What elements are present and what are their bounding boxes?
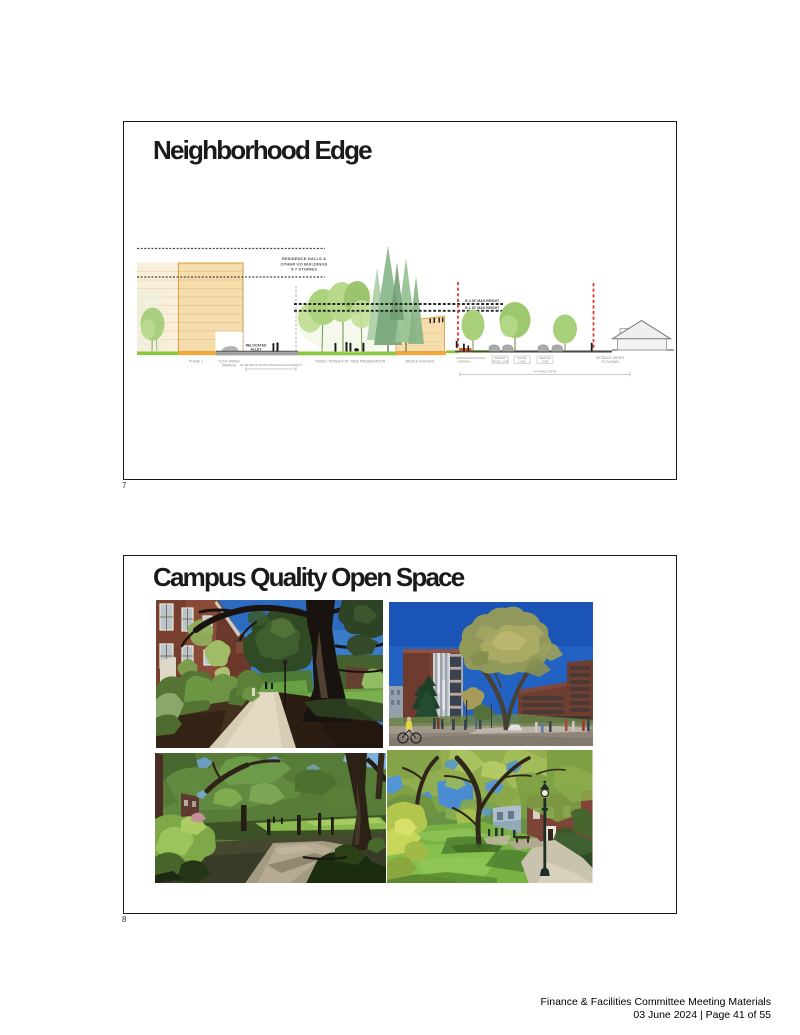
svg-text:LANE: LANE bbox=[519, 359, 526, 363]
svg-text:PHASE 1: PHASE 1 bbox=[189, 360, 203, 364]
svg-text:LANDSCAPE: LANDSCAPE bbox=[456, 356, 472, 360]
svg-text:PARKING: PARKING bbox=[494, 356, 505, 360]
svg-text:70' SHOWN: 70' SHOWN bbox=[601, 360, 619, 364]
svg-text:OTHER UO BUILDINGS: OTHER UO BUILDINGS bbox=[281, 261, 328, 266]
svg-text:60' PUBLIC ROW: 60' PUBLIC ROW bbox=[534, 370, 557, 374]
svg-text:R-2 35' MAX HEIGHT: R-2 35' MAX HEIGHT bbox=[465, 299, 500, 303]
svg-text:TRAVEL LANE: TRAVEL LANE bbox=[491, 359, 509, 363]
svg-text:TRAVEL: TRAVEL bbox=[517, 356, 527, 360]
svg-text:PLANTING: PLANTING bbox=[473, 356, 486, 360]
svg-text:R-1 30' MAX HEIGHT: R-1 30' MAX HEIGHT bbox=[465, 306, 500, 310]
svg-text:5-7 STORIES: 5-7 STORIES bbox=[291, 267, 317, 272]
svg-text:PARKING: PARKING bbox=[539, 356, 550, 360]
svg-text:PARKING: PARKING bbox=[222, 364, 237, 368]
svg-text:ALLEY: ALLEY bbox=[250, 348, 262, 352]
svg-text:LANE: LANE bbox=[542, 359, 549, 363]
svg-text:SIDEWALK: SIDEWALK bbox=[457, 359, 471, 363]
svg-text:RESIDENCE HALLS &: RESIDENCE HALLS & bbox=[282, 256, 326, 261]
svg-text:40' SETBACK FROM ORDINANCE EAS: 40' SETBACK FROM ORDINANCE EASEMENT bbox=[240, 363, 302, 367]
svg-text:"FAMILY TRANSITION" TREE PRESE: "FAMILY TRANSITION" TREE PRESERVATION bbox=[315, 360, 386, 364]
svg-text:MIDDLE HOUSING: MIDDLE HOUSING bbox=[406, 360, 435, 364]
